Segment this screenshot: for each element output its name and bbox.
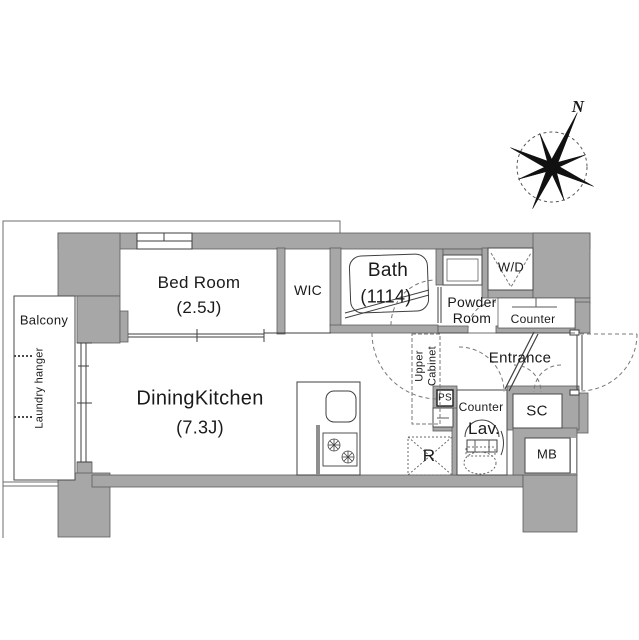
- wd-label: W/D: [498, 261, 524, 276]
- powder-room-label: Powder Room: [447, 294, 496, 326]
- compass-rose: [484, 91, 623, 235]
- balcony-label: Balcony: [20, 314, 68, 329]
- refrigerator-label: R: [423, 446, 436, 466]
- laundry-hanger-label: Laundry hanger: [34, 347, 47, 428]
- mb-label: MB: [537, 448, 557, 463]
- bedroom-sliding-opening: [128, 329, 331, 342]
- balcony-window: [77, 343, 92, 462]
- front-door-arc: [580, 334, 637, 391]
- entrance-label: Entrance: [489, 349, 551, 366]
- lav-label: Lav.: [468, 419, 500, 439]
- ps-label: PS: [438, 392, 452, 404]
- sc-label: SC: [526, 402, 547, 419]
- dining-kitchen-size-label: (7.3J): [176, 418, 224, 439]
- bedroom-size-label: (2.5J): [176, 298, 221, 318]
- counter-top-label: Counter: [511, 313, 556, 327]
- bedroom-label: Bed Room: [158, 273, 241, 293]
- dining-kitchen-label: DiningKitchen: [136, 388, 263, 411]
- kitchen-sink: [326, 391, 356, 422]
- bath-label: Bath: [368, 260, 408, 282]
- lav-counter-label: Counter: [459, 401, 504, 415]
- floor-plan: Balcony Laundry hanger Bed Room (2.5J) W…: [0, 0, 639, 640]
- upper-cabinet-label: Upper Cabinet: [413, 346, 438, 386]
- kitchen-unit: [297, 382, 360, 475]
- wic-label: WIC: [294, 282, 322, 298]
- bath-size-label: (1114): [360, 287, 411, 308]
- north-label: N: [572, 97, 585, 117]
- kitchen-partition: [316, 425, 320, 475]
